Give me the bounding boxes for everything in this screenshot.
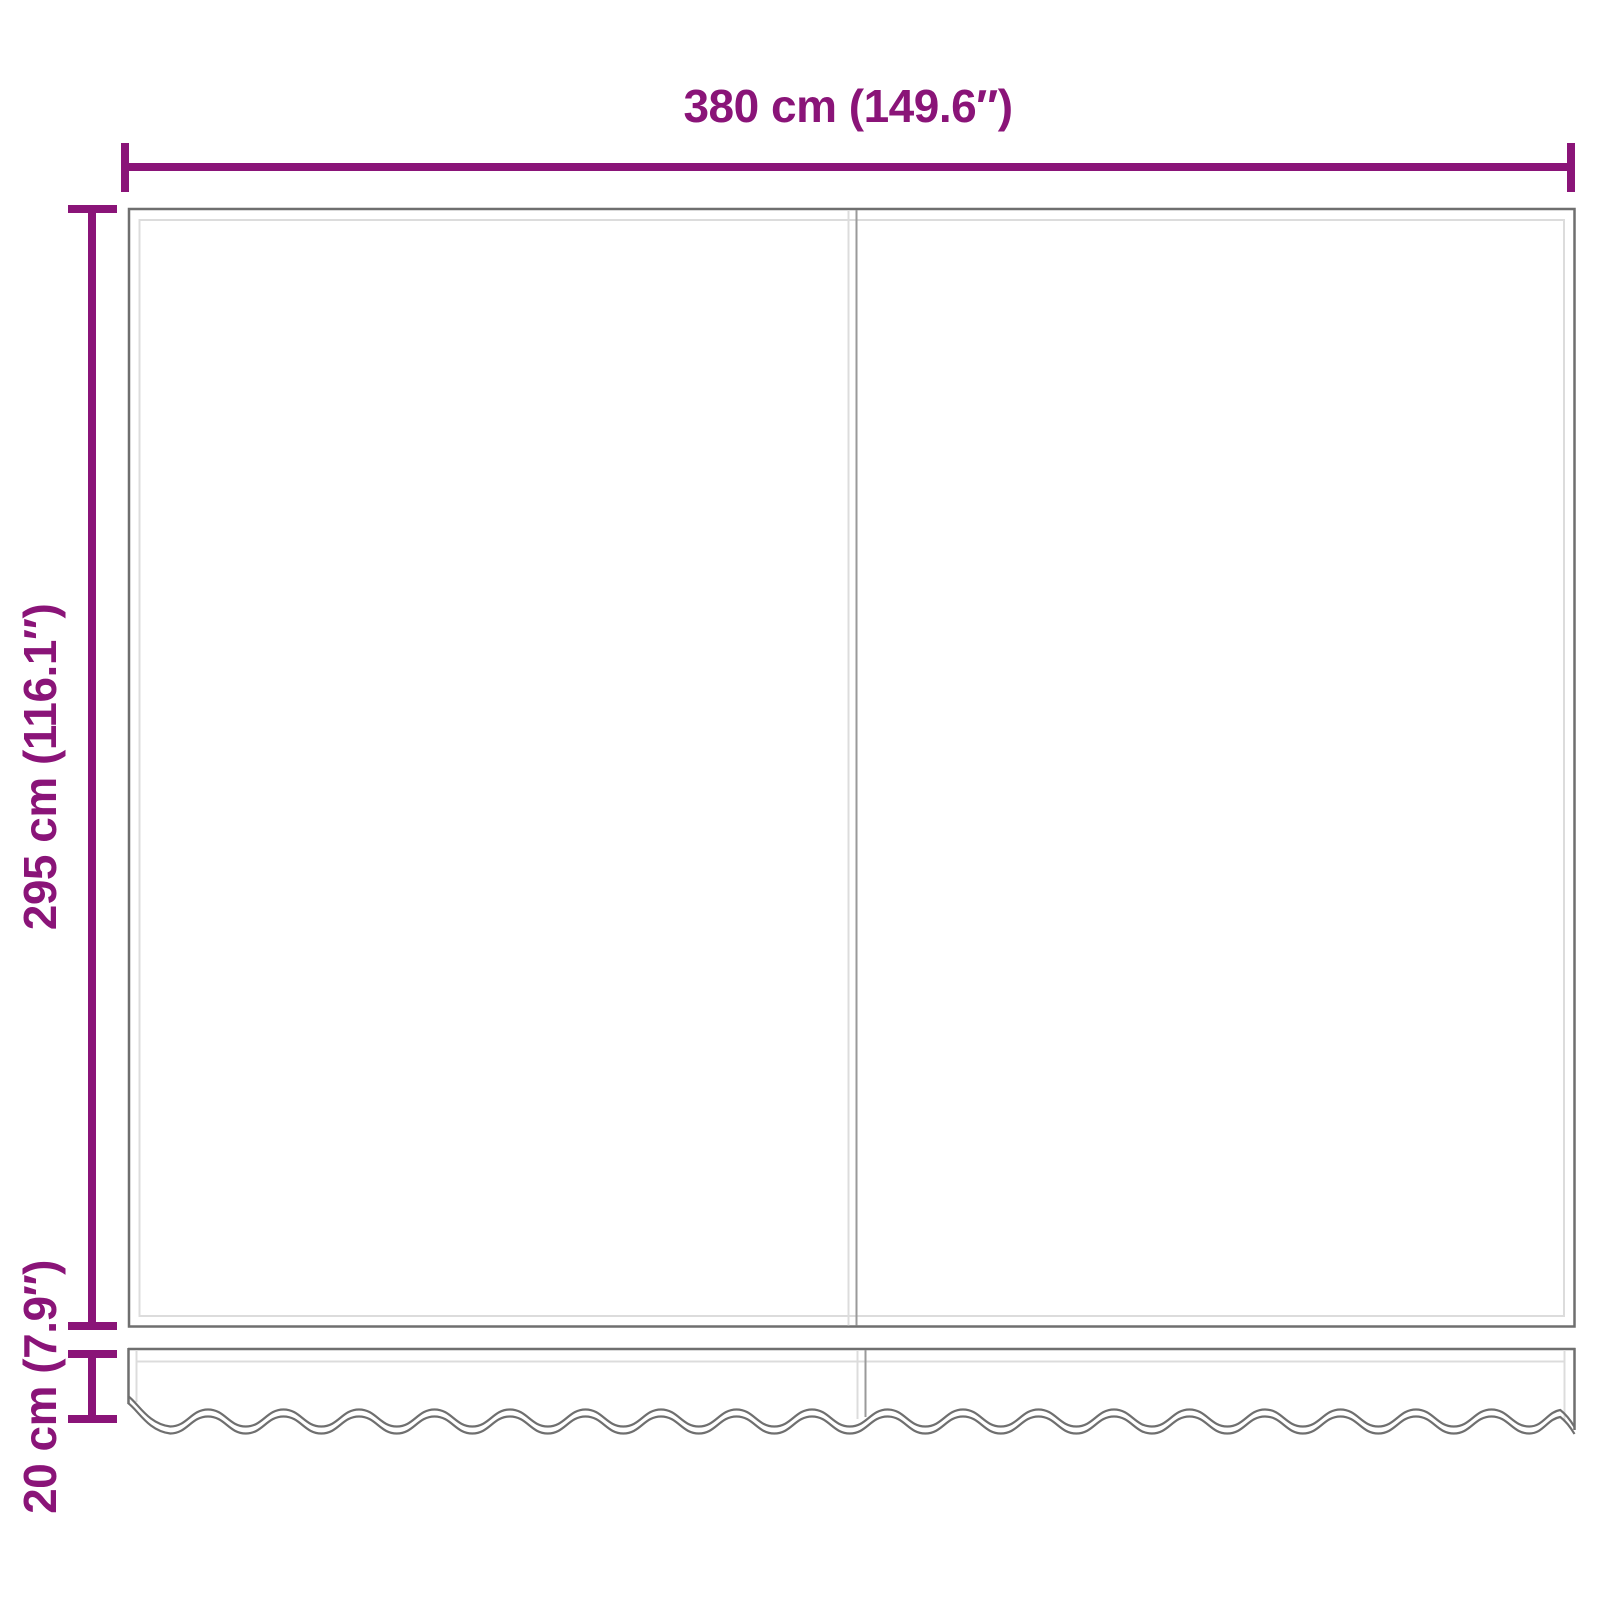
valance-height-dimension: [68, 1354, 117, 1419]
fabric-panel: [129, 209, 1575, 1327]
valance: [128, 1348, 1576, 1434]
height-dimension-label: 295 cm (116.1″): [14, 604, 66, 931]
width-dimension: [125, 143, 1571, 192]
valance-scalloped-edge-lower: [128, 1403, 1575, 1434]
valance-height-dimension-label: 20 cm (7.9″): [14, 1260, 66, 1514]
fabric-panel-outline: [129, 209, 1575, 1327]
awning-dimension-diagram: 380 cm (149.6″) 295 cm (116.1″) 20 cm (7…: [0, 0, 1600, 1600]
width-dimension-label: 380 cm (149.6″): [683, 80, 1012, 132]
height-dimension: [68, 209, 117, 1326]
diagram-canvas: 380 cm (149.6″) 295 cm (116.1″) 20 cm (7…: [0, 0, 1600, 1600]
fabric-panel-inner-hem-line: [140, 220, 1565, 1316]
